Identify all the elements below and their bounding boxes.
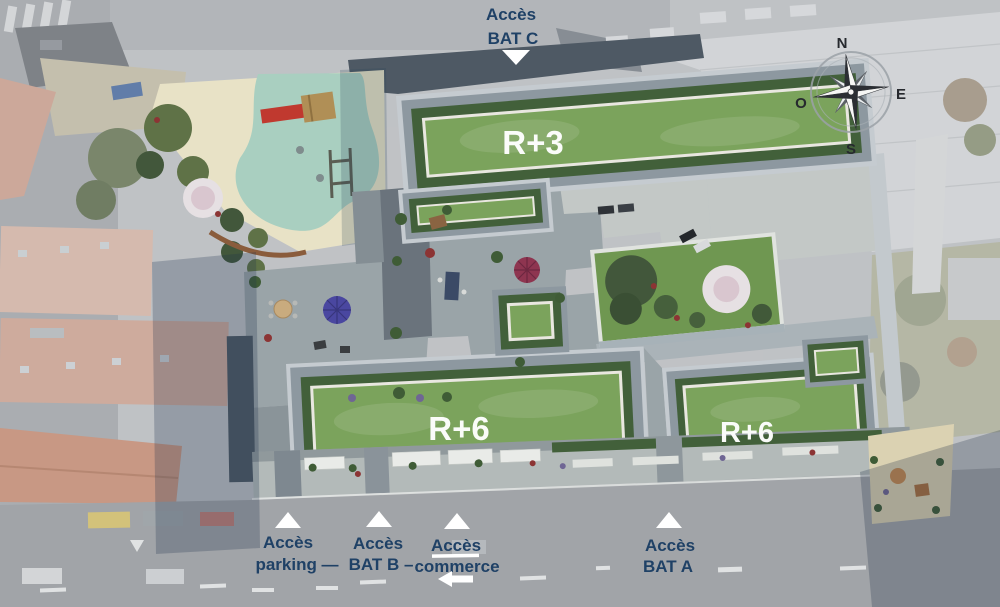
access-parking-line1: Accès (263, 533, 313, 552)
car-on-road (22, 568, 62, 584)
compass-letter-s: S (846, 141, 856, 158)
label-r6-east: R+6 (720, 417, 774, 449)
access-bat-a-line1: Accès (645, 536, 695, 555)
building-r6-east-step (802, 335, 871, 388)
garden-terrace (590, 232, 785, 349)
bench (340, 346, 350, 353)
access-bat-c-line2: BAT C (488, 29, 539, 48)
access-bat-c-line1: Accès (486, 5, 536, 24)
compass-letter-e: E (896, 86, 906, 103)
spring-toy (316, 174, 324, 182)
access-bat-a-line2: BAT A (643, 557, 693, 576)
mid-paver-block (352, 190, 384, 264)
access-commerce-line1: Accès (431, 536, 481, 555)
label-r3: R+3 (502, 124, 563, 161)
access-bat-b-line1: Accès (353, 534, 403, 553)
label-r6-main: R+6 (428, 410, 489, 447)
parking-entrance (274, 450, 302, 497)
spring-toy (296, 146, 304, 154)
access-commerce-line2: commerce (414, 557, 499, 576)
access-bat-b-line2: BAT B – (349, 555, 414, 574)
compass-letter-n: N (837, 35, 848, 52)
site-plan-image: N E S O R+3 R+6 R+6 Accès BAT C Accès pa… (0, 0, 1000, 607)
umbrella-maroon (514, 257, 540, 283)
shadow-overlay-west (152, 252, 260, 554)
parked-car-yellow (88, 512, 130, 529)
compass-letter-o: O (795, 95, 807, 112)
umbrella-blue (323, 296, 351, 324)
site-plan-svg: N E S O R+3 R+6 R+6 Accès BAT C Accès pa… (0, 0, 1000, 607)
car-on-road (146, 569, 184, 584)
access-parking-line2: parking — (255, 555, 338, 574)
table (444, 272, 459, 301)
bat-b-entrance (364, 447, 390, 494)
